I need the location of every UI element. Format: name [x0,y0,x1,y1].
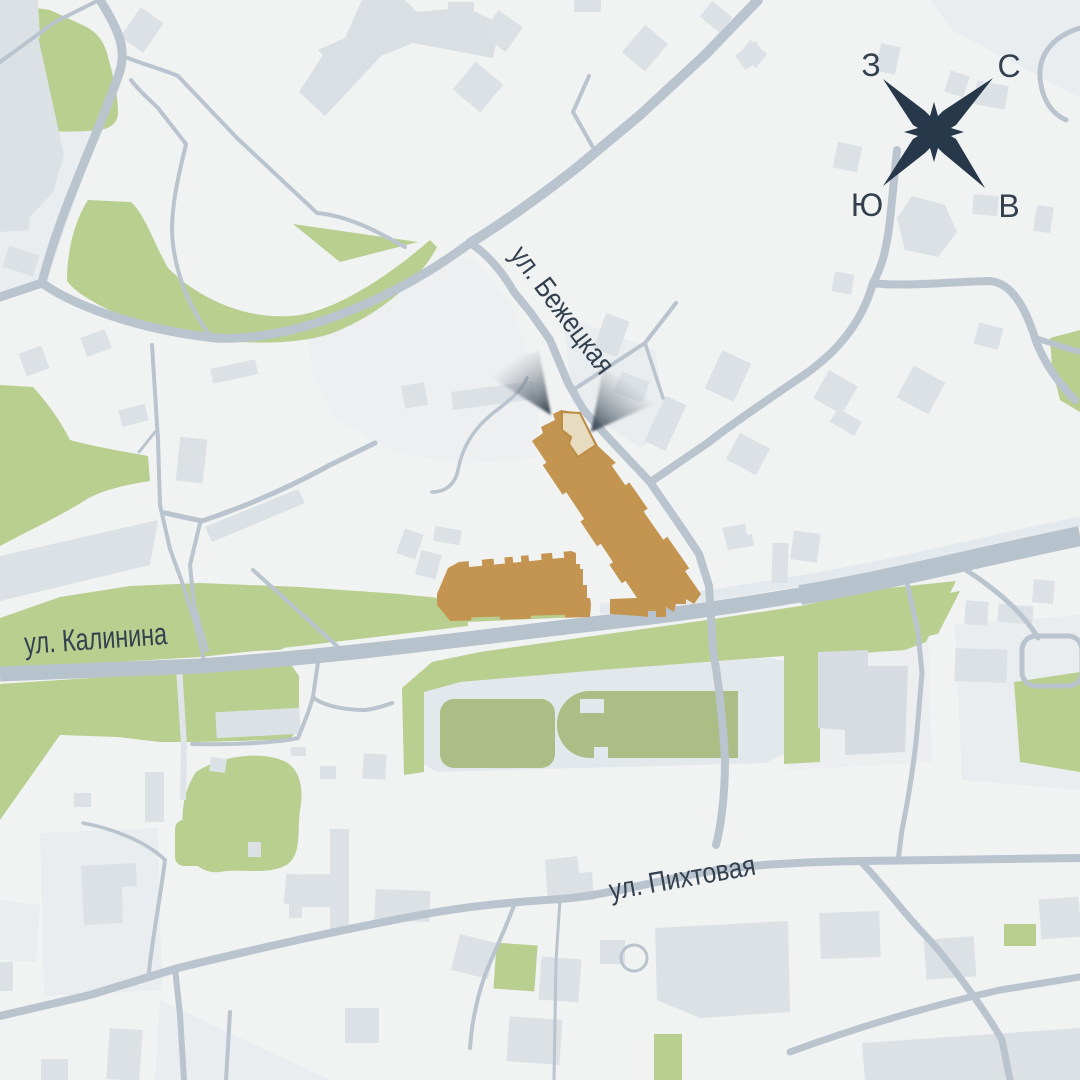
svg-text:В: В [998,188,1019,224]
svg-text:Ю: Ю [851,187,883,223]
svg-text:З: З [861,47,880,83]
svg-text:С: С [997,48,1020,84]
